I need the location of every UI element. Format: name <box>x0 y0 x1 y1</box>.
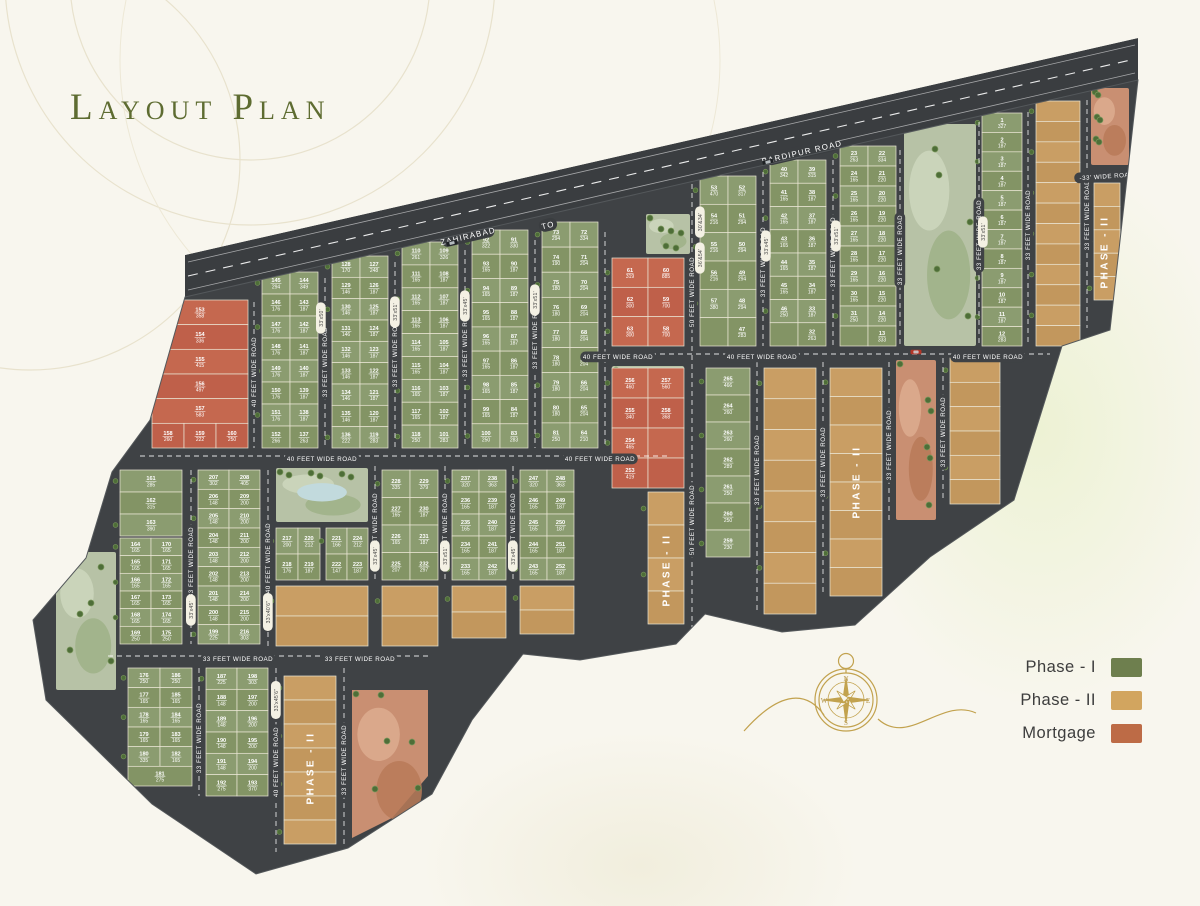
plot-cell <box>830 568 882 597</box>
plot-number: 129 <box>341 283 350 289</box>
tree-icon <box>936 172 942 178</box>
plot-number: 116 <box>411 386 420 392</box>
plot-number: 9 <box>1000 273 1003 279</box>
block-B199: 2073022084052061482092002051482102002041… <box>191 470 260 644</box>
block-Tm1 <box>269 586 368 646</box>
plot-number: 66 <box>581 380 587 386</box>
tree-icon <box>658 226 664 232</box>
plot-area: 180 <box>552 311 561 317</box>
car-icon <box>911 350 922 355</box>
plot-area: 261 <box>412 255 421 261</box>
tree-icon <box>98 564 104 570</box>
plot-area: 148 <box>217 701 226 707</box>
plot-area: 187 <box>440 278 449 284</box>
plot-number: 211 <box>240 533 249 539</box>
plot-area: 363 <box>556 482 565 488</box>
svg-text:33'x50': 33'x50' <box>319 309 325 327</box>
plot-number: 152 <box>271 432 280 438</box>
plot-area: 180 <box>552 412 561 418</box>
plot-number: 118 <box>411 432 420 438</box>
park <box>896 360 936 520</box>
plot-area: 216 <box>710 277 719 283</box>
plot-number: 263 <box>723 431 732 437</box>
plot-number: 135 <box>341 411 350 417</box>
plot-area: 315 <box>808 173 817 179</box>
plot-area: 303 <box>248 680 257 686</box>
tree-icon <box>445 597 450 602</box>
plot-area: 222 <box>196 437 205 443</box>
plot-area: 415 <box>196 363 205 369</box>
plot-number: 49 <box>739 270 745 276</box>
plot-number: 208 <box>240 475 249 481</box>
plot-area: 187 <box>440 415 449 421</box>
plot-number: 209 <box>240 494 249 500</box>
size-badge: 33'x51' <box>440 540 450 571</box>
plot-area: 176 <box>272 306 281 312</box>
plot-area: 283 <box>370 439 379 445</box>
plot-area: 165 <box>482 316 491 322</box>
plot-area: 220 <box>878 237 887 243</box>
plot-cell <box>648 428 684 458</box>
plot-number: 99 <box>483 407 489 413</box>
plot-area: 187 <box>998 163 1007 169</box>
plot-cell <box>764 491 816 522</box>
plot-number: 214 <box>240 591 250 597</box>
plot-number: 59 <box>663 297 669 303</box>
plot-area: 204 <box>580 387 589 393</box>
plot-area: 165 <box>131 548 140 554</box>
svg-text:40 FEET WIDE ROAD: 40 FEET WIDE ROAD <box>565 456 635 463</box>
tree-icon <box>465 433 470 438</box>
plot-area: 250 <box>162 637 171 643</box>
plot-number: 217 <box>282 536 291 542</box>
plot-area: 165 <box>461 504 470 510</box>
plot-number: 161 <box>146 476 155 482</box>
plot-number: 252 <box>556 564 565 570</box>
plot-number: 16 <box>879 271 885 277</box>
plot-number: 89 <box>511 286 517 292</box>
plot-area: 165 <box>162 566 171 572</box>
tree-icon <box>319 539 324 544</box>
plot-number: 260 <box>723 512 732 518</box>
plot-number: 192 <box>217 781 226 787</box>
tree-icon <box>255 325 260 330</box>
plot-area: 220 <box>878 217 887 223</box>
plot-area: 165 <box>850 297 859 303</box>
plot-area: 165 <box>482 389 491 395</box>
plot-number: 184 <box>171 712 181 718</box>
plot-cell <box>764 553 816 584</box>
plot-area: 250 <box>172 679 181 685</box>
tree-icon <box>277 469 283 475</box>
svg-text:40 FEET WIDE ROAD: 40 FEET WIDE ROAD <box>287 456 357 463</box>
plot-number: 35 <box>809 260 815 266</box>
svg-text:PHASE - II: PHASE - II <box>662 534 673 607</box>
plot-area: 220 <box>878 177 887 183</box>
plot-area: 200 <box>240 616 249 622</box>
plot-area: 220 <box>878 297 887 303</box>
plot-number: 153 <box>195 308 204 314</box>
road-label: 40 FEET WIDE ROAD <box>249 334 260 409</box>
tree-icon <box>409 739 415 745</box>
plot-cell <box>764 583 816 614</box>
plot-area: 210 <box>580 437 589 443</box>
road-label: 40 FEET WIDE ROAD <box>562 454 637 465</box>
plot-number: 235 <box>461 520 470 526</box>
compass-e: E <box>866 697 870 705</box>
legend-swatch-mortgage <box>1111 724 1142 743</box>
plot-area: 165 <box>172 738 181 744</box>
plot-area: 700 <box>662 303 671 309</box>
plot-area: 187 <box>998 182 1007 188</box>
block-G161b: 1641651701651651651711651661651721651671… <box>113 538 182 644</box>
plot-area: 187 <box>998 279 1007 285</box>
tree-icon <box>673 245 679 251</box>
tree-icon <box>763 216 768 221</box>
site-plan-map: 1533581543361554151564971575831582601592… <box>0 0 1200 906</box>
plot-area: 165 <box>140 738 149 744</box>
tree-icon <box>605 270 610 275</box>
road-label: 33 FEET WIDE ROAD <box>339 722 350 797</box>
tree-icon <box>255 413 260 418</box>
plot-area: 187 <box>370 417 379 423</box>
svg-text:33'x40'6": 33'x40'6" <box>266 601 272 624</box>
plot-number: 182 <box>171 752 180 758</box>
tree-icon <box>378 692 384 698</box>
tree-icon <box>823 380 828 385</box>
plot-number: 21 <box>879 171 885 177</box>
plot-area: 165 <box>482 365 491 371</box>
block-B10: 2654662642602632602622892612502602502592… <box>699 368 750 557</box>
tree-icon <box>121 754 126 759</box>
tree-icon <box>191 477 196 482</box>
plot-number: 52 <box>739 185 745 191</box>
plot-cell <box>1094 183 1120 206</box>
plot-area: 187 <box>556 548 565 554</box>
size-badge: 30'&34' <box>695 206 705 237</box>
tree-icon <box>145 310 150 315</box>
plot-area: 166 <box>332 542 341 548</box>
tree-icon <box>605 381 610 386</box>
plot-number: 47 <box>739 327 745 333</box>
plot-number: 205 <box>209 514 218 520</box>
plot-area: 294 <box>738 277 747 283</box>
plot-area: 700 <box>662 333 671 339</box>
plot-area: 289 <box>724 464 733 470</box>
plot-number: 17 <box>879 251 885 257</box>
plot-area: 200 <box>240 539 249 545</box>
legend-swatch-phase2 <box>1111 691 1142 710</box>
tree-icon <box>833 154 838 159</box>
legend-item-phase2: Phase - II <box>972 691 1142 710</box>
tree-icon <box>113 523 118 528</box>
tree-icon <box>77 611 83 617</box>
plot-area: 165 <box>131 601 140 607</box>
plot-number: 33 <box>809 306 815 312</box>
svg-text:33 FEET WIDE ROAD: 33 FEET WIDE ROAD <box>940 397 947 467</box>
phase2-label: PHASE - II <box>1100 216 1111 289</box>
plot-number: 55 <box>711 242 717 248</box>
svg-text:33 FEET WIDE ROAD: 33 FEET WIDE ROAD <box>341 725 348 795</box>
plot-area: 187 <box>420 540 429 546</box>
tree-icon <box>1087 286 1092 291</box>
svg-text:40 FEET WIDE ROAD: 40 FEET WIDE ROAD <box>265 523 272 593</box>
plot-number: 97 <box>483 358 489 364</box>
plot-number: 54 <box>711 214 718 220</box>
plot-number: 213 <box>240 572 249 578</box>
plot-number: 6 <box>1000 215 1003 221</box>
plot-area: 165 <box>172 758 181 764</box>
plot-number: 257 <box>661 378 670 384</box>
plot-area: 187 <box>370 375 379 381</box>
plot-number: 143 <box>299 300 308 306</box>
plot-area: 165 <box>131 619 140 625</box>
plot-number: 170 <box>162 542 171 548</box>
plot-area: 294 <box>738 248 747 254</box>
plot-number: 224 <box>353 536 363 542</box>
plot-number: 162 <box>146 498 155 504</box>
plot-area: 187 <box>353 568 362 574</box>
block-B243: 2473202483632461652491872451652501872441… <box>513 470 574 580</box>
plot-area: 165 <box>162 619 171 625</box>
tree-icon <box>535 433 540 438</box>
plot-area: 187 <box>488 526 497 532</box>
tree-icon <box>663 243 669 249</box>
phase2-label: PHASE - II <box>306 732 317 805</box>
tree-icon <box>934 266 940 272</box>
plot-number: 156 <box>195 382 204 388</box>
plot-area: 294 <box>552 236 561 242</box>
tree-icon <box>763 309 768 314</box>
svg-text:33'x51': 33'x51' <box>981 223 987 241</box>
plot-area: 200 <box>248 744 257 750</box>
plot-number: 204 <box>209 533 219 539</box>
plot-area: 165 <box>412 392 421 398</box>
plot-cell <box>276 616 368 646</box>
plot-number: 250 <box>556 520 565 526</box>
plot-area: 165 <box>461 526 470 532</box>
plot-area: 187 <box>300 306 309 312</box>
block-B1: 1452941443491461761431871471761421871481… <box>255 272 318 448</box>
plot-area: 187 <box>808 196 817 202</box>
plot-number: 3 <box>1000 157 1003 163</box>
plot-area: 380 <box>710 305 719 311</box>
plot-area: 187 <box>300 416 309 422</box>
svg-text:33'x51': 33'x51' <box>533 291 539 309</box>
plot-number: 142 <box>299 322 308 328</box>
legend-label-phase1: Phase - I <box>1025 658 1096 677</box>
size-badge: 33'x51' <box>390 296 400 327</box>
plot-cell <box>276 586 368 616</box>
size-badge: 33'x45' <box>508 540 518 571</box>
tree-icon <box>641 506 646 511</box>
plot-cell <box>382 616 438 646</box>
plot-area: 342 <box>780 173 789 179</box>
plot-area: 176 <box>283 568 292 574</box>
block-G176: 1762501862501771651851651781651841651791… <box>121 668 192 786</box>
plot-area: 187 <box>488 504 497 510</box>
plot-cell <box>648 492 684 525</box>
plot-number: 62 <box>627 297 633 303</box>
plot-number: 151 <box>271 410 280 416</box>
plot-area: 419 <box>626 474 635 480</box>
tree-icon <box>1095 92 1101 98</box>
plot-cell <box>830 539 882 568</box>
plot-area: 204 <box>580 336 589 342</box>
tree-icon <box>833 314 838 319</box>
plot-cell <box>950 480 1000 504</box>
plot-cell <box>770 323 798 346</box>
plot-number: 233 <box>461 564 470 570</box>
plot-number: 176 <box>139 673 148 679</box>
block-T5 <box>943 358 1000 504</box>
plot-area: 220 <box>878 197 887 203</box>
plot-area: 285 <box>147 482 156 488</box>
plot-area: 187 <box>998 144 1007 150</box>
svg-text:33 FEET WIDE ROAD: 33 FEET WIDE ROAD <box>820 427 827 497</box>
plot-number: 159 <box>195 431 204 437</box>
plot-area: 165 <box>529 548 538 554</box>
plot-area: 165 <box>162 584 171 590</box>
plot-number: 254 <box>625 438 635 444</box>
plot-area: 204 <box>580 362 589 368</box>
svg-text:33 FEET WIDE ROAD: 33 FEET WIDE ROAD <box>196 703 203 773</box>
tree-icon <box>286 472 292 478</box>
plot-number: 72 <box>581 230 587 236</box>
plot-area: 294 <box>272 284 281 290</box>
plot-number: 111 <box>412 272 421 278</box>
plot-area: 165 <box>850 237 859 243</box>
plot-area: 260 <box>164 437 173 443</box>
tree-icon <box>108 658 114 664</box>
svg-text:50 FEET WIDE ROAD: 50 FEET WIDE ROAD <box>689 485 696 555</box>
plot-number: 15 <box>879 291 885 297</box>
plot-number: 258 <box>661 408 670 414</box>
plot-number: 60 <box>663 268 669 274</box>
plot-area: 358 <box>196 314 205 320</box>
svg-text:33'x51': 33'x51' <box>834 227 840 245</box>
tree-icon <box>699 541 704 546</box>
plot-number: 26 <box>851 211 857 217</box>
tree-icon <box>1029 313 1034 318</box>
plot-area: 187 <box>488 548 497 554</box>
size-badge: 33'x51' <box>831 220 841 251</box>
tree-icon <box>513 596 518 601</box>
svg-text:33'x45': 33'x45' <box>463 297 469 315</box>
road-label: 33 FEET WIDE ROAD <box>1082 177 1093 252</box>
page-title: Layout Plan <box>70 86 330 129</box>
plot-area: 187 <box>998 202 1007 208</box>
plot-area: 165 <box>162 601 171 607</box>
plot-area: 165 <box>780 289 789 295</box>
plot-number: 43 <box>781 237 787 243</box>
block-B2: 1281701272481291461261871301461251871311… <box>325 256 388 448</box>
svg-text:33'x51': 33'x51' <box>443 547 449 565</box>
plot-number: 246 <box>529 498 538 504</box>
plot-area: 370 <box>248 787 257 793</box>
svg-text:PHASE - II: PHASE - II <box>1100 216 1111 289</box>
road-label: 33 FEET WIDE ROAD <box>320 324 331 399</box>
plot-number: 57 <box>711 299 717 305</box>
plot-area: 148 <box>217 765 226 771</box>
plot-cell <box>520 610 574 634</box>
tree-icon <box>67 647 73 653</box>
plot-cell <box>764 368 816 399</box>
plot-number: 87 <box>511 334 517 340</box>
plot-cell <box>382 586 438 616</box>
legend-item-phase1: Phase - I <box>972 658 1142 677</box>
plot-number: 104 <box>439 363 449 369</box>
plot-number: 253 <box>625 468 634 474</box>
tree-icon <box>145 409 150 414</box>
plot-area: 165 <box>850 177 859 183</box>
road-label: 33 FEET WIDE ROAD <box>752 432 763 507</box>
plot-area: 334 <box>580 236 589 242</box>
plot-area: 187 <box>370 353 379 359</box>
svg-text:33'x51': 33'x51' <box>393 303 399 321</box>
plot-area: 187 <box>556 526 565 532</box>
plot-area: 297 <box>420 568 429 574</box>
svg-text:40 FEET WIDE ROAD: 40 FEET WIDE ROAD <box>251 337 258 407</box>
plot-number: 196 <box>248 717 257 723</box>
svg-text:33 FEET WIDE ROAD: 33 FEET WIDE ROAD <box>203 656 273 663</box>
plot-number: 19 <box>879 211 885 217</box>
compass-w: W <box>821 697 828 705</box>
plot-number: 150 <box>271 388 280 394</box>
park <box>646 214 690 254</box>
block-B233: 2373202383632361652391872351652401872341… <box>445 470 506 580</box>
plot-cell <box>452 612 506 638</box>
plot-number: 1 <box>1000 118 1003 124</box>
plot-number: 256 <box>625 378 634 384</box>
road-label: 40 FEET WIDE ROAD <box>284 454 359 465</box>
tree-icon <box>325 307 330 312</box>
block-T1 <box>1029 101 1080 346</box>
svg-text:40 FEET WIDE ROAD: 40 FEET WIDE ROAD <box>953 354 1023 361</box>
plot-number: 93 <box>483 262 489 268</box>
plot-area: 180 <box>552 387 561 393</box>
plot-cell <box>764 522 816 553</box>
plot-area: 220 <box>878 277 887 283</box>
plot-area: 204 <box>580 286 589 292</box>
plot-number: 130 <box>341 305 350 311</box>
plot-number: 240 <box>488 520 497 526</box>
plot-area: 207 <box>392 568 401 574</box>
tree-icon <box>605 329 610 334</box>
plot-cell <box>700 318 728 346</box>
tree-icon <box>317 473 323 479</box>
plot-area: 146 <box>342 375 351 381</box>
plot-number: 181 <box>155 771 164 777</box>
phase2-label: PHASE - II <box>852 446 863 519</box>
plot-cell <box>284 676 336 700</box>
plot-number: 157 <box>195 406 204 412</box>
plot-number: 227 <box>391 506 400 512</box>
plot-area: 248 <box>370 268 379 274</box>
plot-area: 368 <box>662 414 671 420</box>
plot-area: 225 <box>209 636 218 642</box>
plot-number: 264 <box>723 404 733 410</box>
plot-number: 141 <box>299 344 308 350</box>
plot-number: 238 <box>488 476 497 482</box>
plot-cell <box>830 397 882 426</box>
plot-area: 225 <box>217 680 226 686</box>
plot-number: 236 <box>461 498 470 504</box>
plot-number: 50 <box>739 242 745 248</box>
tree-icon <box>372 786 378 792</box>
plot-number: 11 <box>999 312 1005 318</box>
plot-area: 250 <box>228 437 237 443</box>
